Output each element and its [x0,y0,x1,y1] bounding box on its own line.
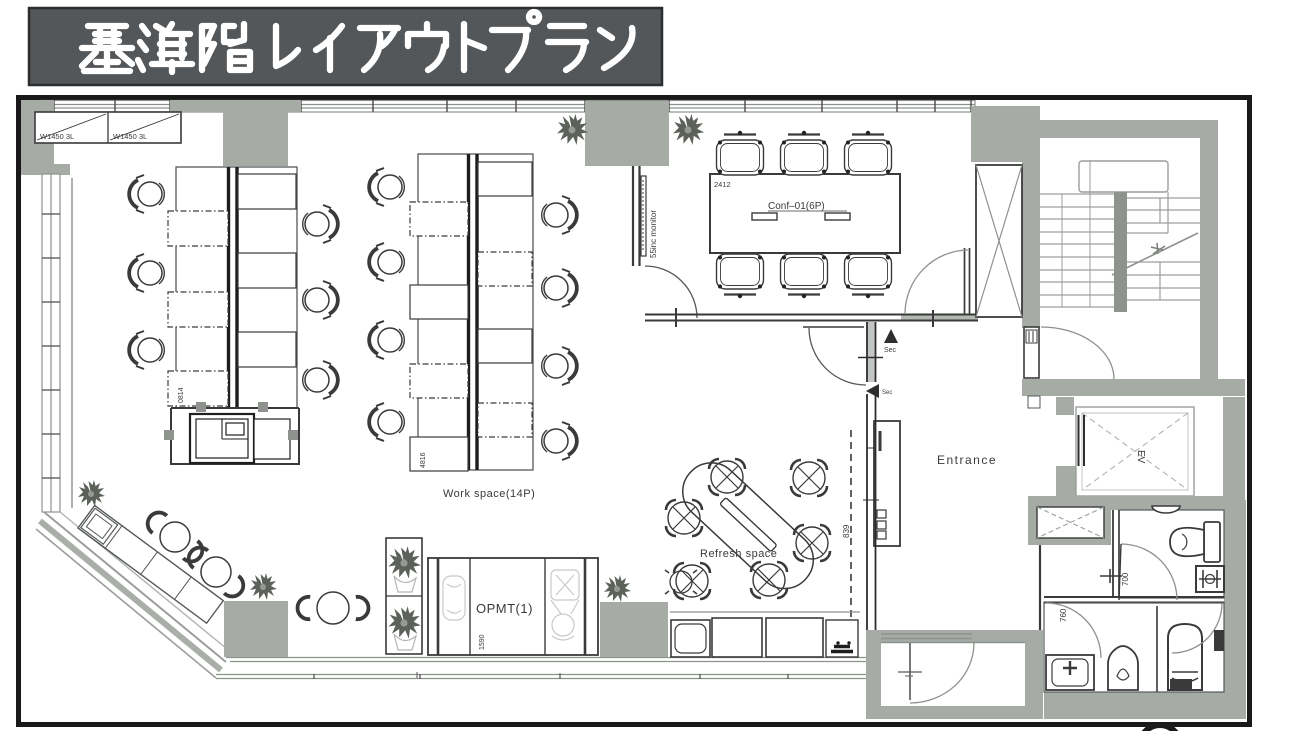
svg-text:Sec: Sec [884,347,897,354]
svg-text:EV: EV [1135,450,1146,464]
svg-text:4816: 4816 [420,452,427,468]
svg-text:W1450 3L: W1450 3L [40,132,74,141]
svg-text:Work space(14P): Work space(14P) [443,488,535,500]
svg-text:Sec: Sec [882,390,892,396]
svg-text:760: 760 [1059,608,1068,622]
svg-text:1590: 1590 [479,634,486,650]
svg-text:Refresh space: Refresh space [700,548,777,560]
svg-text:Conf–01(6P): Conf–01(6P) [768,201,825,212]
svg-text:W1450 3L: W1450 3L [113,132,147,141]
svg-text:700: 700 [1121,572,1130,586]
svg-text:0814: 0814 [178,387,185,403]
svg-text:55inc monitor: 55inc monitor [649,210,658,258]
svg-text:839: 839 [842,524,851,538]
svg-text:OPMT(1): OPMT(1) [476,601,533,616]
svg-text:Entrance: Entrance [937,453,997,467]
svg-text:2412: 2412 [714,180,731,189]
